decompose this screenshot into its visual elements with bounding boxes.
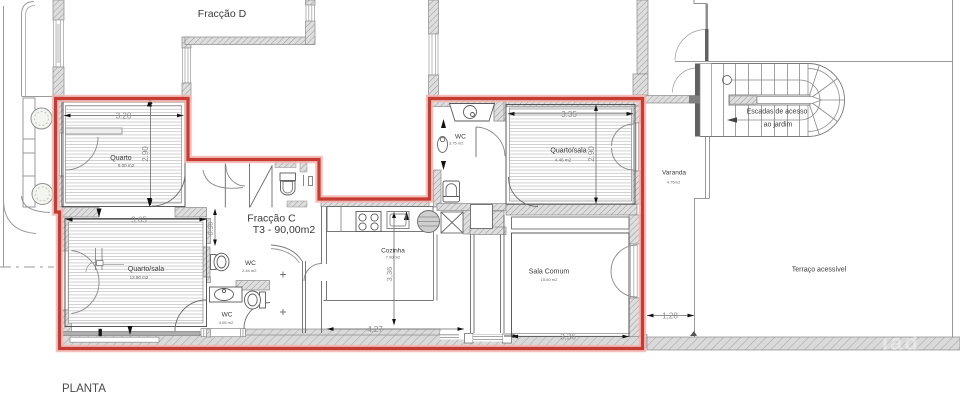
svg-text:WC: WC xyxy=(222,312,233,319)
svg-text:4.05 m2: 4.05 m2 xyxy=(219,320,234,325)
svg-text:2.90: 2.90 xyxy=(141,146,150,162)
svg-text:Sala Comum: Sala Comum xyxy=(529,269,570,276)
svg-text:Escadas de acesso: Escadas de acesso xyxy=(747,109,808,116)
svg-text:2.90: 2.90 xyxy=(587,146,596,162)
svg-text:3,36: 3,36 xyxy=(560,333,576,342)
svg-text:WC: WC xyxy=(455,134,466,141)
svg-text:Quarto/sala: Quarto/sala xyxy=(128,266,164,273)
svg-text:4.46 m2: 4.46 m2 xyxy=(555,158,572,163)
svg-text:9.00 m2: 9.00 m2 xyxy=(118,163,135,168)
svg-text:ao jardim: ao jardim xyxy=(764,122,793,129)
svg-text:Terraço acessível: Terraço acessível xyxy=(792,267,847,274)
svg-text:WC: WC xyxy=(245,260,256,267)
svg-text:3.65: 3.65 xyxy=(131,216,147,225)
svg-text:Quarto: Quarto xyxy=(110,155,132,162)
svg-text:Quarto/sala: Quarto/sala xyxy=(550,148,586,155)
svg-text:4.76m2: 4.76m2 xyxy=(667,180,681,185)
svg-text:15.60 m2: 15.60 m2 xyxy=(541,277,558,282)
svg-text:Fracção C: Fracção C xyxy=(247,213,296,225)
svg-text:2.44 m2: 2.44 m2 xyxy=(242,268,257,273)
svg-text:13.80 m2: 13.80 m2 xyxy=(130,275,149,280)
svg-text:3.35: 3.35 xyxy=(561,110,577,119)
svg-text:7.90 m2: 7.90 m2 xyxy=(386,255,401,260)
svg-text:3,36: 3,36 xyxy=(385,267,394,282)
svg-text:3.75 m2: 3.75 m2 xyxy=(449,141,464,146)
svg-text:1,28: 1,28 xyxy=(662,312,678,321)
svg-text:3.20: 3.20 xyxy=(116,112,132,121)
svg-text:PLANTA: PLANTA xyxy=(62,383,106,395)
svg-text:Fracção D: Fracção D xyxy=(198,8,247,20)
svg-text:0.90: 0.90 xyxy=(208,222,215,236)
svg-text:T3 - 90,00m2: T3 - 90,00m2 xyxy=(253,224,316,236)
svg-text:iad: iad xyxy=(882,330,920,355)
svg-text:Cozinha: Cozinha xyxy=(381,248,405,255)
svg-text:4,27: 4,27 xyxy=(367,325,383,334)
svg-text:Varanda: Varanda xyxy=(662,170,686,177)
